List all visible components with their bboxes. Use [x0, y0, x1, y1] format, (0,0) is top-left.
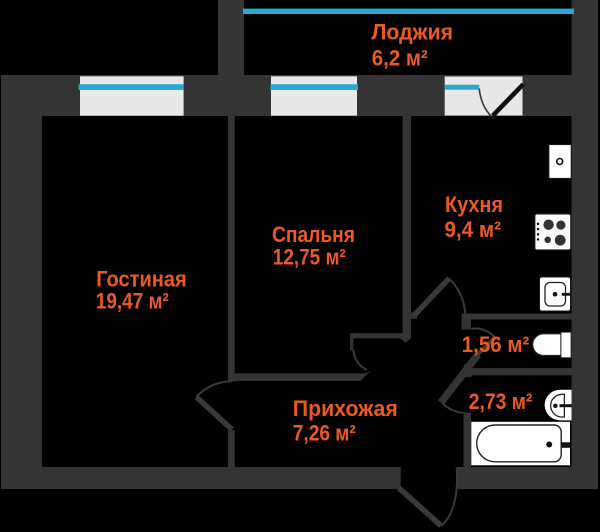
svg-text:12,75 м²: 12,75 м²	[273, 245, 346, 270]
svg-text:Прихожая: Прихожая	[293, 396, 398, 421]
svg-text:7,26 м²: 7,26 м²	[293, 421, 356, 446]
svg-text:2,73 м²: 2,73 м²	[469, 389, 533, 414]
svg-text:Кухня: Кухня	[445, 192, 503, 217]
svg-text:Лоджия: Лоджия	[372, 20, 454, 45]
svg-text:6,2 м²: 6,2 м²	[372, 46, 428, 71]
svg-text:9,4 м²: 9,4 м²	[445, 217, 502, 242]
svg-text:1,56 м²: 1,56 м²	[462, 332, 530, 357]
svg-text:Спальня: Спальня	[272, 222, 355, 247]
svg-text:19,47 м²: 19,47 м²	[96, 289, 169, 314]
